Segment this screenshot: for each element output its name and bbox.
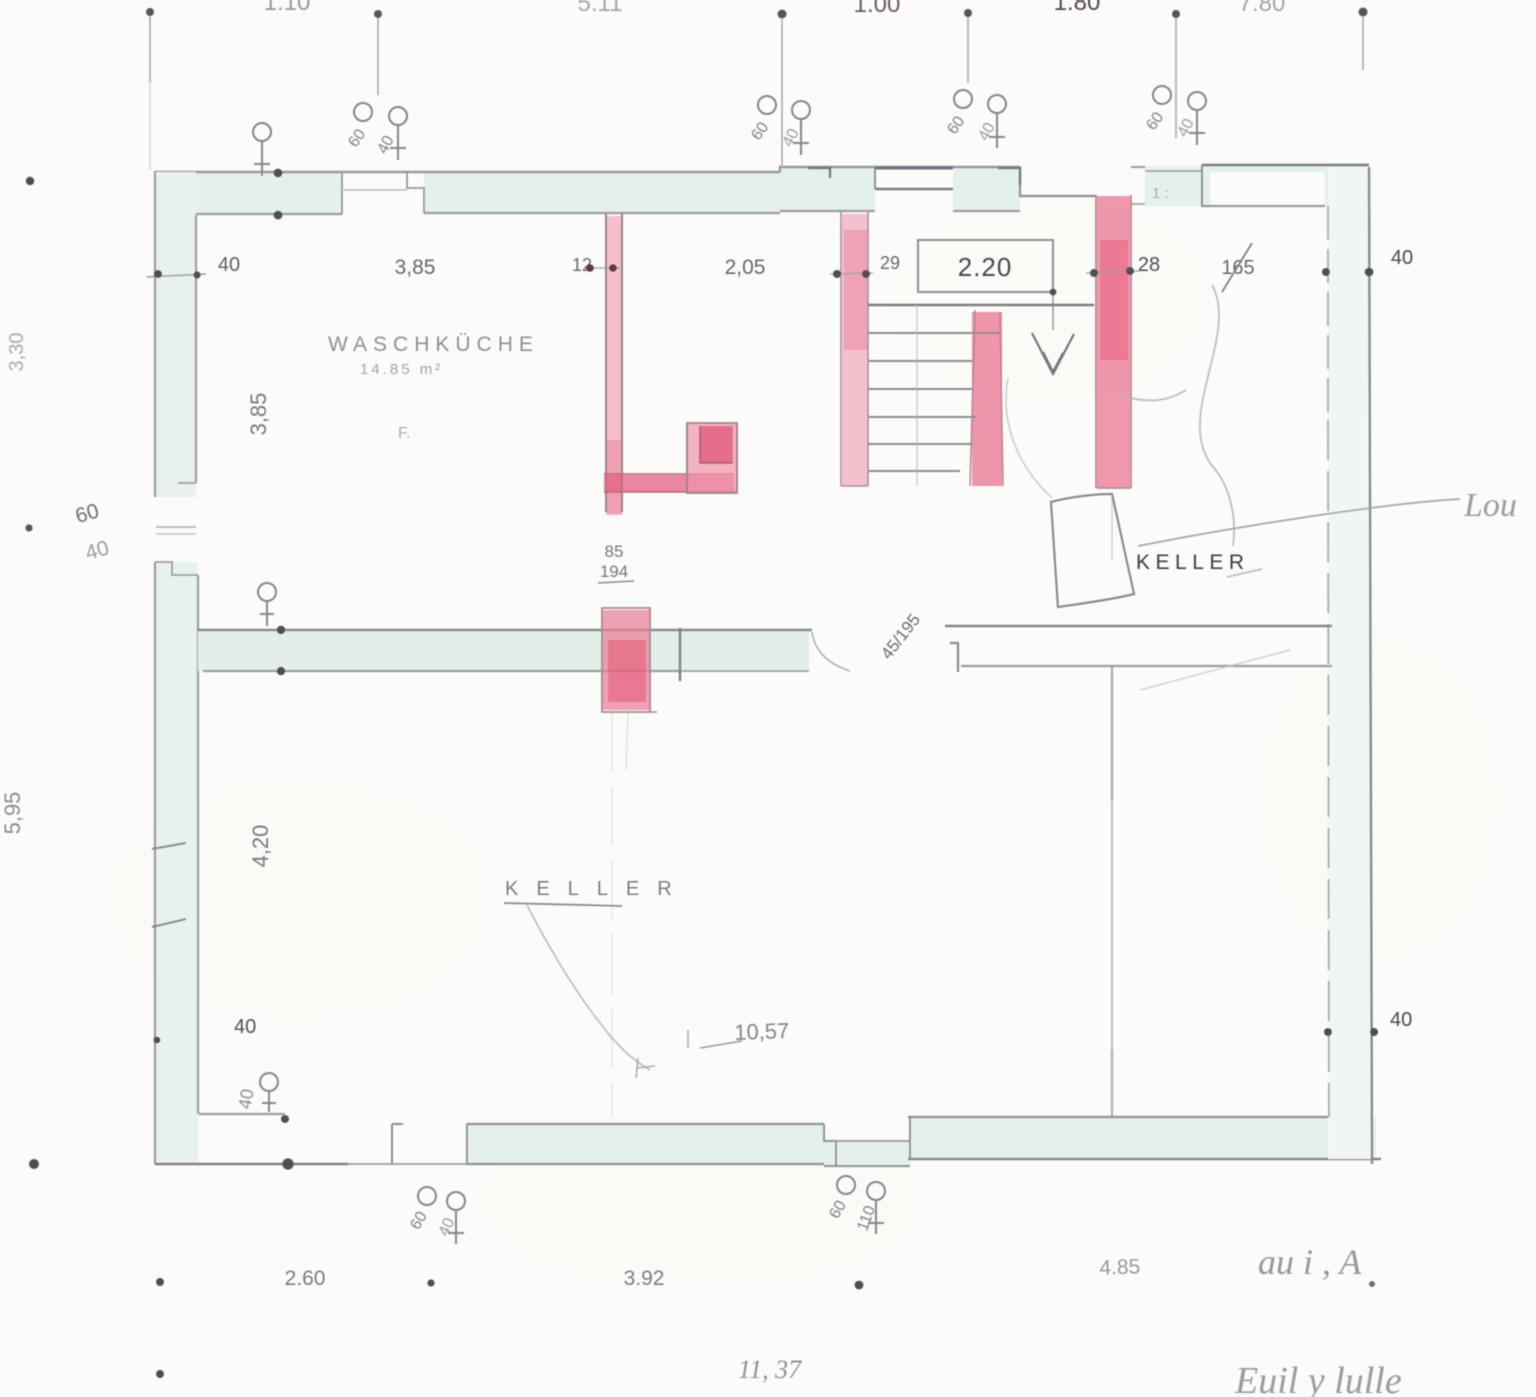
svg-text:Euil y lulle: Euil y lulle bbox=[1234, 1360, 1402, 1397]
svg-text:F.: F. bbox=[398, 425, 410, 442]
svg-text:au i , A: au i , A bbox=[1258, 1242, 1362, 1282]
svg-text:1 :: 1 : bbox=[1152, 185, 1169, 202]
svg-text:4,20: 4,20 bbox=[248, 825, 273, 868]
svg-text:KELLER: KELLER bbox=[1136, 551, 1250, 574]
svg-text:2.60: 2.60 bbox=[285, 1267, 326, 1290]
svg-text:40: 40 bbox=[218, 254, 240, 276]
svg-text:40: 40 bbox=[1390, 1009, 1412, 1031]
svg-text:WASCHKÜCHE: WASCHKÜCHE bbox=[328, 333, 539, 356]
svg-text:40: 40 bbox=[1391, 247, 1413, 269]
svg-text:14.85 m²: 14.85 m² bbox=[360, 361, 443, 378]
svg-text:3,30: 3,30 bbox=[6, 333, 28, 372]
svg-text:1.10: 1.10 bbox=[264, 0, 311, 16]
svg-text:11, 37: 11, 37 bbox=[738, 1355, 802, 1384]
svg-text:7.80: 7.80 bbox=[1239, 0, 1286, 17]
svg-text:KELLER: KELLER bbox=[505, 878, 690, 900]
svg-text:2.20: 2.20 bbox=[958, 252, 1013, 282]
svg-text:40: 40 bbox=[235, 1087, 258, 1110]
svg-text:5.11: 5.11 bbox=[578, 0, 623, 17]
svg-text:2,05: 2,05 bbox=[725, 256, 766, 279]
svg-text:3,85: 3,85 bbox=[246, 393, 271, 436]
svg-text:3.92: 3.92 bbox=[624, 1267, 665, 1290]
svg-text:165: 165 bbox=[1221, 257, 1254, 279]
svg-text:10,57: 10,57 bbox=[734, 1018, 790, 1045]
svg-text:4.85: 4.85 bbox=[1099, 1255, 1141, 1279]
svg-text:1.00: 1.00 bbox=[854, 0, 901, 18]
svg-text:28: 28 bbox=[1138, 254, 1160, 276]
svg-text:1.80: 1.80 bbox=[1054, 0, 1101, 16]
svg-text:3,85: 3,85 bbox=[395, 256, 436, 279]
svg-text:194: 194 bbox=[600, 562, 628, 581]
svg-text:85: 85 bbox=[605, 542, 624, 561]
svg-text:40: 40 bbox=[234, 1016, 256, 1038]
svg-text:29: 29 bbox=[880, 253, 900, 273]
svg-text:5,95: 5,95 bbox=[0, 792, 25, 835]
svg-text:Lou: Lou bbox=[1463, 487, 1517, 524]
